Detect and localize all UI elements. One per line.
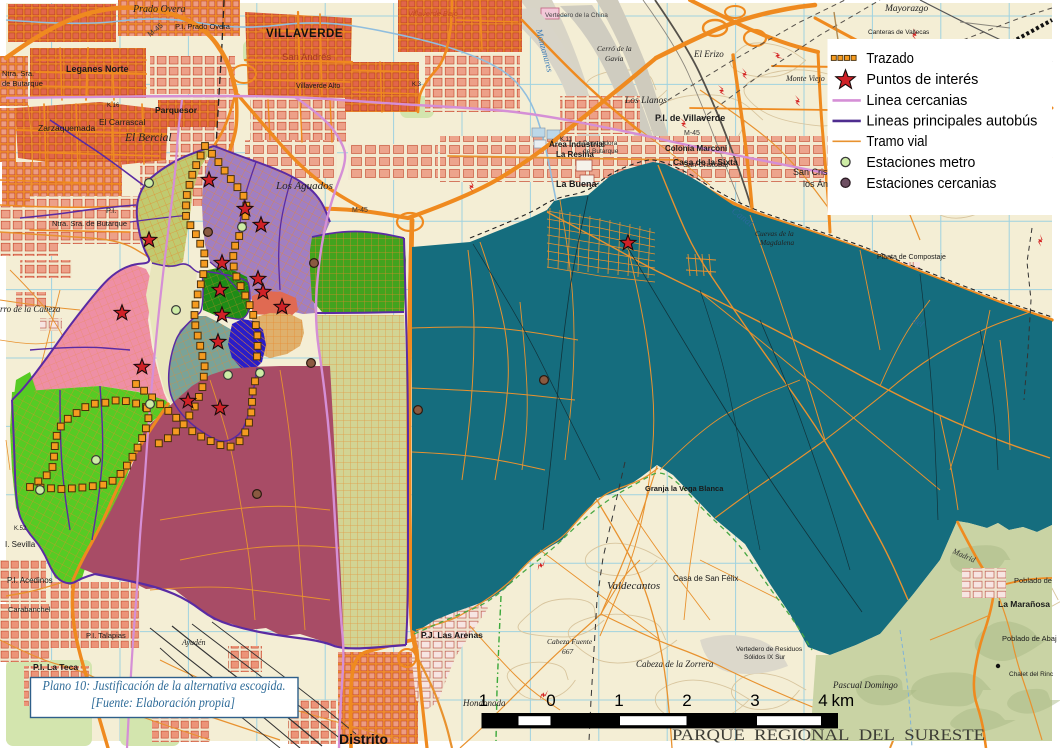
svg-text:VILLAVERDE: VILLAVERDE (266, 28, 343, 40)
svg-text:Vertedero de Residuos: Vertedero de Residuos (736, 646, 803, 653)
svg-text:El Erizo: El Erizo (693, 49, 724, 59)
svg-text:1: 1 (479, 691, 488, 710)
svg-text:Depuradora: Depuradora (583, 140, 618, 147)
svg-text:Cerró de la: Cerró de la (597, 44, 632, 53)
svg-text:San Andrés: San Andrés (282, 52, 331, 63)
svg-text:K.3: K.3 (412, 82, 422, 88)
svg-text:rro de la Cabeza: rro de la Cabeza (0, 304, 61, 314)
svg-text:K.11: K.11 (560, 137, 573, 143)
svg-text:P.I. La Teca: P.I. La Teca (33, 662, 78, 672)
svg-text:Valdecantos: Valdecantos (607, 580, 660, 592)
svg-text:K.52: K.52 (14, 526, 27, 532)
svg-text:Zarzaquemada: Zarzaquemada (38, 123, 95, 133)
svg-text:Casa de la Sixta: Casa de la Sixta (673, 157, 738, 167)
svg-text:El Bercial: El Bercial (124, 132, 172, 144)
svg-text:Granja la Vega Blanca: Granja la Vega Blanca (645, 484, 724, 493)
svg-text:Poblado de: Poblado de (1014, 576, 1052, 585)
svg-text:Estaciones cercanias: Estaciones cercanias (866, 176, 996, 192)
svg-text:Cuevas de la: Cuevas de la (755, 229, 794, 238)
svg-text:M-45: M-45 (352, 207, 368, 214)
svg-text:Linea cercanias: Linea cercanias (866, 93, 967, 109)
svg-text:Prado Overa: Prado Overa (132, 4, 186, 15)
svg-text:Casa de San Félix: Casa de San Félix (673, 574, 738, 583)
svg-text:3: 3 (750, 691, 759, 710)
svg-text:Ntra. Sra. de Butarque: Ntra. Sra. de Butarque (52, 219, 127, 228)
svg-text:La Buena: La Buena (556, 179, 598, 189)
svg-text:M-45: M-45 (684, 130, 700, 137)
svg-text:P.I. Talapias: P.I. Talapias (86, 631, 126, 640)
svg-text:Villaverde Alto: Villaverde Alto (296, 83, 340, 90)
svg-text:PARQUE REGIONAL DEL SURESTE: PARQUE REGIONAL DEL SURESTE (672, 727, 985, 744)
svg-text:I. Sevilla: I. Sevilla (5, 540, 36, 549)
svg-text:K.16: K.16 (107, 103, 120, 109)
svg-text:Mayorazgo: Mayorazgo (884, 4, 929, 14)
svg-text:Carabanchel: Carabanchel (8, 605, 51, 614)
svg-text:Distrito: Distrito (339, 731, 388, 747)
svg-text:P.I. Acedinos: P.I. Acedinos (7, 576, 53, 585)
svg-text:La Marañosa: La Marañosa (998, 599, 1050, 609)
svg-text:Lineas principales autobús: Lineas principales autobús (866, 114, 1037, 130)
svg-text:Plano 10: Justificación de la: Plano 10: Justificación de la alternativ… (42, 678, 286, 693)
svg-text:Magdalena: Magdalena (759, 238, 794, 247)
svg-text:Colonia Marconi: Colonia Marconi (665, 144, 727, 153)
svg-text:Ayudén: Ayudén (181, 638, 206, 647)
svg-text:1: 1 (614, 691, 623, 710)
svg-text:Parquesor: Parquesor (155, 105, 198, 115)
svg-text:Villaverde Bajo: Villaverde Bajo (408, 9, 458, 18)
svg-text:Los Llanos: Los Llanos (624, 96, 667, 106)
svg-text:de Butarque: de Butarque (2, 79, 43, 88)
svg-text:Monte Viejo: Monte Viejo (785, 74, 825, 83)
svg-text:Tramo vial: Tramo vial (866, 134, 927, 150)
svg-text:Sólidos IX Sur: Sólidos IX Sur (744, 654, 786, 661)
svg-text:Puntos de interés: Puntos de interés (866, 72, 978, 88)
svg-text:Cabeza de la Zorrera: Cabeza de la Zorrera (636, 659, 714, 669)
svg-text:2: 2 (682, 691, 691, 710)
svg-text:[Fuente: Elaboración propia]: [Fuente: Elaboración propia] (91, 695, 235, 710)
svg-text:4: 4 (818, 691, 827, 710)
svg-text:El Carrascal: El Carrascal (99, 117, 145, 127)
svg-text:P.I. de Villaverde: P.I. de Villaverde (655, 113, 725, 123)
svg-text:Trazado: Trazado (866, 51, 914, 67)
svg-text:Poblado de Abaj: Poblado de Abaj (1002, 634, 1057, 643)
svg-text:Canteras de Vallecas: Canteras de Vallecas (868, 29, 930, 36)
svg-text:Gavia: Gavia (605, 54, 624, 63)
svg-text:Pascual Domingo: Pascual Domingo (832, 680, 898, 690)
svg-text:P.I. Prado Overa: P.I. Prado Overa (175, 22, 231, 31)
svg-text:Ntra. Sra.: Ntra. Sra. (2, 69, 34, 78)
svg-text:de Butarque: de Butarque (583, 148, 619, 155)
svg-text:Planta de Compostaje: Planta de Compostaje (877, 254, 946, 261)
svg-text:P.J. Las Arenas: P.J. Las Arenas (421, 630, 483, 640)
svg-text:Chalet del Rinc: Chalet del Rinc (1009, 671, 1054, 678)
svg-text:Cabeza Fuente: Cabeza Fuente (547, 637, 593, 646)
svg-text:P.I.: P.I. (106, 206, 116, 215)
svg-text:Los Aguados: Los Aguados (275, 180, 333, 192)
svg-text:0: 0 (546, 691, 555, 710)
svg-text:Estaciones metro: Estaciones metro (866, 155, 975, 171)
svg-text:Leganes Norte: Leganes Norte (66, 64, 129, 74)
svg-text:667: 667 (562, 647, 574, 656)
svg-text:km: km (832, 691, 855, 710)
svg-text:Vertedero de la China: Vertedero de la China (545, 12, 608, 19)
